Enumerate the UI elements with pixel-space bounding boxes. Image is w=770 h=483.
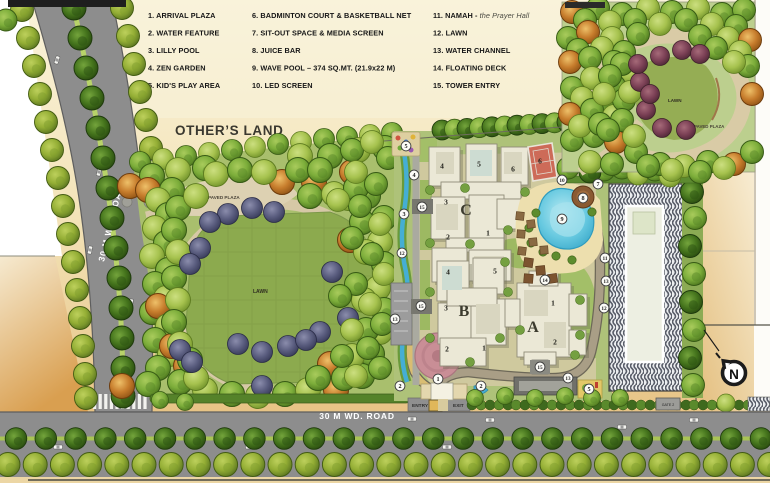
svg-text:N: N [729, 367, 739, 382]
svg-text:ENTRY: ENTRY [412, 403, 429, 409]
svg-text:14. FLOATING DECK: 14. FLOATING DECK [433, 64, 507, 73]
svg-text:13: 13 [603, 279, 609, 285]
svg-text:15: 15 [418, 304, 424, 310]
svg-text:5: 5 [587, 386, 590, 393]
svg-text:4: 4 [440, 161, 444, 170]
svg-text:11. NAMAH - the Prayer Hall: 11. NAMAH - the Prayer Hall [433, 11, 530, 20]
svg-text:12: 12 [601, 306, 607, 312]
svg-text:5. KID'S PLAY AREA: 5. KID'S PLAY AREA [148, 81, 221, 90]
svg-text:8. JUICE BAR: 8. JUICE BAR [252, 46, 301, 55]
svg-text:9. WAVE POOL – 374 SQ.MT. (21.: 9. WAVE POOL – 374 SQ.MT. (21.9x22 M) [252, 64, 396, 73]
svg-text:6: 6 [511, 164, 515, 173]
svg-text:LAWN: LAWN [253, 289, 268, 295]
svg-text:3: 3 [444, 303, 448, 312]
svg-text:2: 2 [553, 337, 557, 346]
svg-text:5: 5 [493, 266, 497, 275]
svg-text:3. LILLY POOL: 3. LILLY POOL [148, 46, 200, 55]
svg-text:C: C [460, 202, 472, 219]
svg-text:10: 10 [559, 178, 565, 184]
svg-text:GATE 2: GATE 2 [662, 403, 675, 407]
svg-text:12: 12 [399, 251, 405, 257]
svg-text:B: B [459, 303, 470, 320]
svg-text:A: A [527, 319, 539, 336]
svg-text:13: 13 [392, 317, 398, 323]
svg-text:4. ZEN GARDEN: 4. ZEN GARDEN [148, 64, 206, 73]
svg-text:15. TOWER ENTRY: 15. TOWER ENTRY [433, 81, 500, 90]
svg-text:15: 15 [419, 205, 425, 211]
svg-text:6: 6 [538, 156, 542, 165]
svg-text:PAVED PLAZA: PAVED PLAZA [208, 195, 240, 200]
svg-text:8: 8 [581, 195, 584, 202]
svg-text:LAWN: LAWN [668, 98, 682, 103]
svg-text:5: 5 [404, 143, 407, 150]
svg-text:OTHER’S LAND: OTHER’S LAND [175, 123, 283, 138]
svg-text:3: 3 [444, 197, 448, 206]
svg-text:2. WATER FEATURE: 2. WATER FEATURE [148, 29, 219, 38]
svg-text:1: 1 [486, 228, 490, 237]
svg-text:2: 2 [479, 383, 482, 390]
svg-text:2: 2 [445, 344, 449, 353]
svg-text:1. ARRIVAL PLAZA: 1. ARRIVAL PLAZA [148, 11, 216, 20]
svg-text:7: 7 [596, 181, 599, 188]
svg-text:1: 1 [482, 343, 486, 352]
svg-text:14: 14 [542, 278, 548, 284]
svg-text:13. WATER CHANNEL: 13. WATER CHANNEL [433, 46, 511, 55]
svg-text:15: 15 [537, 365, 543, 371]
svg-text:1: 1 [436, 376, 439, 383]
svg-text:4: 4 [446, 267, 450, 276]
svg-text:6. BADMINTON COURT & BASKETBAL: 6. BADMINTON COURT & BASKETBALL NET [252, 11, 412, 20]
svg-text:1: 1 [551, 298, 555, 307]
svg-text:12. LAWN: 12. LAWN [433, 29, 467, 38]
svg-text:3: 3 [402, 211, 405, 218]
svg-text:4: 4 [412, 172, 415, 179]
svg-text:9: 9 [560, 216, 563, 223]
svg-text:7. SIT-OUT SPACE & MEDIA SCREE: 7. SIT-OUT SPACE & MEDIA SCREEN [252, 29, 384, 38]
svg-text:13: 13 [565, 376, 571, 382]
svg-text:11: 11 [602, 256, 607, 262]
svg-text:PAVED PLAZA: PAVED PLAZA [694, 124, 725, 129]
svg-text:5: 5 [477, 159, 481, 168]
svg-text:30 M WD. ROAD: 30 M WD. ROAD [319, 411, 395, 421]
svg-text:2: 2 [446, 232, 450, 241]
svg-text:2: 2 [398, 383, 401, 390]
svg-text:EXIT: EXIT [453, 403, 464, 409]
svg-text:10. LED SCREEN: 10. LED SCREEN [252, 81, 313, 90]
